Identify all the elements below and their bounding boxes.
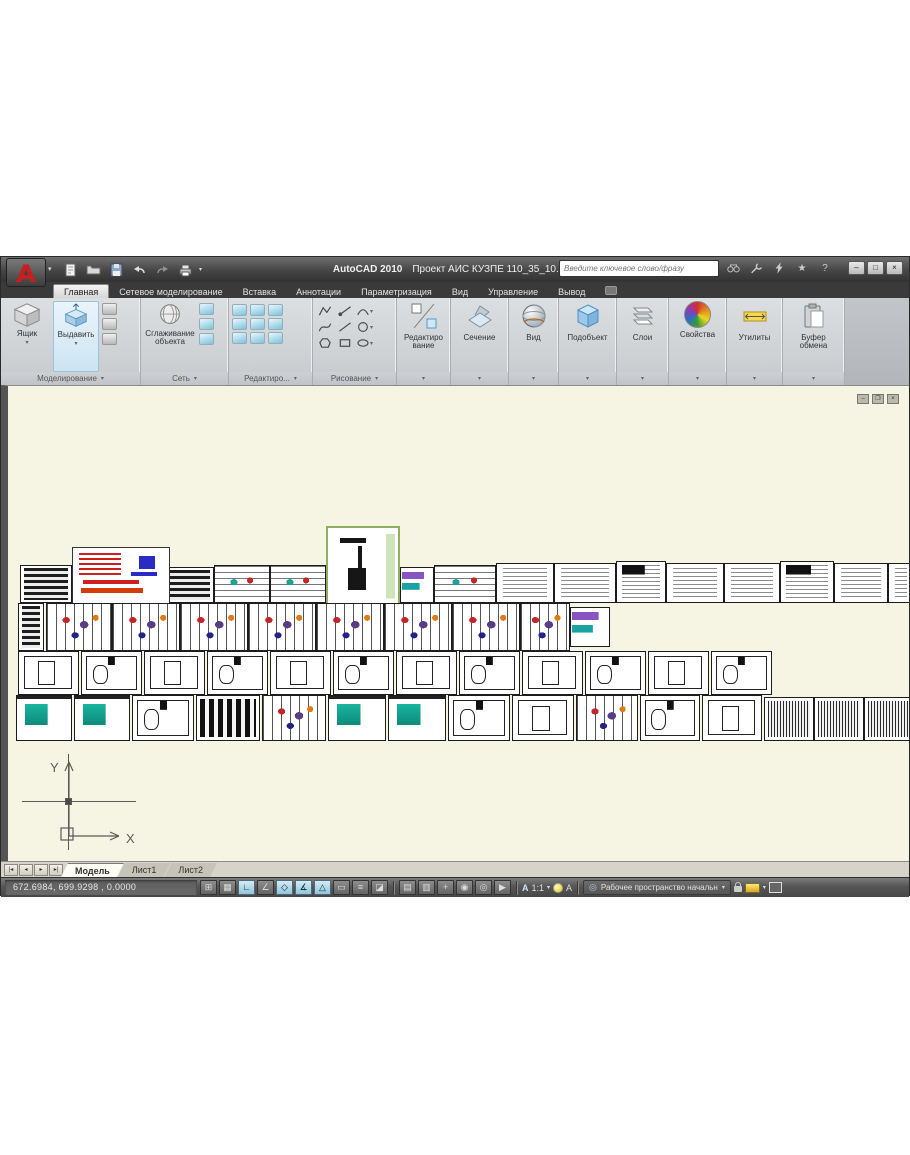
drawing-sheet: [248, 603, 316, 651]
clipboard-icon: [799, 301, 829, 331]
drawing-sheet: [18, 603, 44, 651]
crosshair-pickbox: [65, 798, 72, 805]
qat-dropdown-icon[interactable]: ▾: [199, 266, 202, 273]
app-title: AutoCAD 2010: [333, 264, 402, 275]
redo-icon[interactable]: [153, 262, 172, 278]
measure-icon: [740, 301, 770, 331]
status-bar: 672.6984, 699.9298 , 0.0000 ⊞▦∟∠◇∡△▭≡◪ ▤…: [1, 877, 909, 897]
statusbar-separator: [577, 881, 578, 895]
window-controls: – □ ×: [848, 261, 903, 275]
layout-nav-button-1[interactable]: ◂: [19, 864, 33, 876]
app-menu-arrow-icon[interactable]: ▾: [48, 265, 52, 273]
annotation-scale-value: 1:1: [532, 883, 545, 893]
extrude-button[interactable]: Выдавить▾: [53, 301, 99, 372]
workspace-label: Рабочее пространство начальн: [601, 883, 718, 892]
drawing-sheet: [20, 565, 72, 603]
panel-expander-subobject[interactable]: ▾: [559, 372, 616, 385]
line-icon[interactable]: [336, 320, 353, 334]
layout-nav-button-0[interactable]: |◂: [4, 864, 18, 876]
ucs-x-label: X: [126, 831, 135, 846]
dyn-toggle[interactable]: ▭: [333, 880, 350, 895]
drawing-minimize-button[interactable]: –: [857, 394, 869, 404]
drawing-sheet: [270, 651, 331, 695]
panel-expander-layers[interactable]: ▾: [617, 372, 668, 385]
drawing-sheet: [616, 561, 666, 603]
panel-expander-clipboard[interactable]: ▾: [783, 372, 844, 385]
panel-expander-properties[interactable]: ▾: [669, 372, 726, 385]
drawing-sheet: [724, 563, 780, 603]
union-icon[interactable]: [232, 304, 247, 316]
drawing-sheet: [72, 547, 170, 605]
box-icon: [11, 301, 43, 329]
circle-icon[interactable]: ▾: [356, 320, 373, 334]
subtract-icon[interactable]: [250, 304, 265, 316]
drawing-sheet: [81, 651, 142, 695]
drawing-sheet: [112, 603, 180, 651]
drawing-sheet: [333, 651, 394, 695]
help-icon[interactable]: ?: [817, 260, 833, 276]
drawing-window-controls: – ❐ ×: [857, 394, 899, 404]
loft-icon[interactable]: [102, 333, 117, 345]
drawing-sheet: [640, 695, 700, 741]
workspace-gear-icon: ◎: [589, 882, 597, 893]
ribbon: Ящик▾ Выдавить▾ Моделирование▾ Сглаживан…: [1, 298, 909, 385]
ribbon-tab-bar: ГлавнаяСетевое моделированиеВставкаАннот…: [1, 282, 909, 298]
drawing-sheet: [46, 603, 112, 651]
polar-toggle[interactable]: ∠: [257, 880, 274, 895]
steering-wheel-button[interactable]: ◎: [475, 880, 492, 895]
drawing-sheet: [74, 695, 130, 741]
extrude-icon: [60, 302, 92, 330]
drawing-sheet: [576, 695, 638, 741]
panel-expander-utilities[interactable]: ▾: [727, 372, 782, 385]
ribbon-panel-utilities[interactable]: Утилиты ▾: [727, 298, 783, 385]
workspace-switcher[interactable]: ◎ Рабочее пространство начальн ▾: [583, 880, 731, 895]
ribbon-tab[interactable]: Сетевое моделирование: [109, 285, 232, 298]
imprint-icon[interactable]: [250, 332, 265, 344]
drawing-sheet: [496, 563, 554, 603]
ribbon-panel-view[interactable]: Вид ▾: [509, 298, 559, 385]
undo-icon[interactable]: [130, 262, 149, 278]
ribbon-tab-list: ГлавнаяСетевое моделированиеВставкаАннот…: [53, 284, 595, 298]
ribbon-tab[interactable]: Вставка: [233, 285, 286, 298]
ribbon-filler: [845, 298, 909, 385]
drawing-sheet: [196, 695, 260, 741]
drawing-sheet: [702, 695, 762, 741]
quickview-layouts-button[interactable]: ▤: [399, 880, 416, 895]
ribbon-tab[interactable]: Вывод: [548, 285, 595, 298]
qp-toggle[interactable]: ◪: [371, 880, 388, 895]
tray-dropdown-icon[interactable]: ▾: [763, 884, 766, 891]
otrack-toggle[interactable]: ∡: [295, 880, 312, 895]
drawing-sheet: [388, 695, 446, 741]
mesh-add-crease-icon[interactable]: [199, 318, 214, 330]
spline-icon[interactable]: [316, 320, 333, 334]
drawing-sheet: [207, 651, 268, 695]
canvas[interactable]: – ❐ × Y X: [1, 385, 909, 861]
ribbon-panel-layers[interactable]: Слои ▾: [617, 298, 669, 385]
drawing-sheet: [780, 561, 834, 603]
drawing-sheet: [214, 565, 270, 603]
layout-tab[interactable]: Лист1: [118, 863, 171, 877]
ribbon-panel-clipboard[interactable]: Буфер обмена ▾: [783, 298, 845, 385]
drawing-sheet: [18, 651, 79, 695]
ribbon-panel-section[interactable]: Сечение ▾: [451, 298, 509, 385]
drawing-sheet: [270, 565, 326, 603]
panel-label-modeling[interactable]: Моделирование▾: [1, 372, 140, 385]
clean-screen-button[interactable]: [769, 882, 782, 893]
layout-tab-bar: |◂◂▸▸| МодельЛист1Лист2: [1, 861, 909, 877]
drawing-sheet: [834, 563, 888, 603]
drawing-sheet: [434, 565, 496, 603]
section-icon: [465, 301, 495, 331]
drawing-sheet: [326, 526, 400, 605]
draw-grid: ▾▾▾: [316, 301, 373, 372]
ortho-toggle[interactable]: ∟: [238, 880, 255, 895]
layout-tab[interactable]: Лист2: [164, 863, 217, 877]
drawing-sheet: [864, 697, 909, 741]
panel-label-solidedit[interactable]: Редактиро...▾: [229, 372, 312, 385]
drawing-sheet: [814, 697, 864, 741]
polygon-icon[interactable]: [316, 336, 333, 350]
separate-icon[interactable]: [268, 332, 283, 344]
extrude-face-icon[interactable]: [232, 318, 247, 330]
layout-tab-nav: |◂◂▸▸|: [4, 864, 63, 876]
drawing-sheet: [570, 607, 610, 647]
ribbon-tab[interactable]: Управление: [478, 285, 548, 298]
ribbon-tab[interactable]: Аннотации: [286, 285, 351, 298]
mesh-smooth-less-icon[interactable]: [199, 333, 214, 345]
drawing-sheet: [888, 563, 909, 603]
modify-icon: [409, 301, 439, 331]
drawing-sheet: [396, 651, 457, 695]
autocad-window: ▾ ▾ AutoCAD 2010Проект АИС КУЗПЕ 110_35_…: [0, 256, 910, 896]
autocad-logo-icon: [13, 262, 39, 284]
quickview-drawings-button[interactable]: ▥: [418, 880, 435, 895]
drawing-sheet: [384, 603, 452, 651]
favorites-star-icon[interactable]: ★: [794, 260, 810, 276]
search-icon[interactable]: [725, 260, 741, 276]
layout-nav-button-2[interactable]: ▸: [34, 864, 48, 876]
panel-label-mesh[interactable]: Сеть▾: [141, 372, 228, 385]
ribbon-tab[interactable]: Главная: [53, 284, 109, 298]
drawing-sheet: [520, 603, 570, 651]
sweep-icon[interactable]: [102, 318, 117, 330]
drawing-close-button[interactable]: ×: [887, 394, 899, 404]
ucs-icon: Y X: [14, 744, 139, 850]
ellipse-icon[interactable]: ▾: [356, 336, 373, 350]
snap-toggle[interactable]: ⊞: [200, 880, 217, 895]
modeling-small-icons: [102, 301, 117, 372]
box-button[interactable]: Ящик▾: [4, 301, 50, 372]
rectangle-icon[interactable]: [336, 336, 353, 350]
drawing-sheet: [452, 603, 520, 651]
drawing-sheet: [316, 603, 384, 651]
ribbon-panel-modify[interactable]: Редактиро вание ▾: [397, 298, 451, 385]
status-quick-icons: ▤▥+◉◎▶: [399, 880, 511, 895]
ray-icon[interactable]: [336, 304, 353, 318]
drawing-sheet: [522, 651, 583, 695]
crosshair-horizontal: [22, 801, 136, 802]
drawing-sheet: [132, 695, 194, 741]
open-icon[interactable]: [84, 262, 103, 278]
drawing-sheet: [711, 651, 772, 695]
drawing-sheet: [648, 651, 709, 695]
drawing-sheet: [512, 695, 574, 741]
polyline-icon[interactable]: [316, 304, 333, 318]
shell-icon[interactable]: [232, 332, 247, 344]
properties-colorwheel-icon: [684, 301, 711, 328]
panel-expander-modify[interactable]: ▾: [397, 372, 450, 385]
panel-expander-view[interactable]: ▾: [509, 372, 558, 385]
panel-label-draw[interactable]: Рисование▾: [313, 372, 396, 385]
mesh-small-icons: [199, 301, 214, 372]
ribbon-tab-extra-icon[interactable]: [605, 286, 617, 295]
grid-toggle[interactable]: ▦: [219, 880, 236, 895]
ribbon-tab[interactable]: Параметризация: [351, 285, 442, 298]
ribbon-tab[interactable]: Вид: [442, 285, 478, 298]
drawing-sheet: [666, 563, 724, 603]
annotation-icon: А: [522, 883, 529, 893]
quick-access-toolbar: [61, 262, 195, 278]
tray-icon[interactable]: [745, 883, 760, 893]
move-face-icon[interactable]: [250, 318, 265, 330]
ucs-y-label: Y: [50, 760, 59, 775]
pan-button[interactable]: +: [437, 880, 454, 895]
layout-tab-list: МодельЛист1Лист2: [67, 863, 217, 877]
ribbon-panel-properties[interactable]: Свойства ▾: [669, 298, 727, 385]
infocenter-icons: ★ ?: [725, 260, 833, 276]
intersect-icon[interactable]: [268, 304, 283, 316]
drawing-sheet: [764, 697, 814, 741]
annotation-visibility-icon[interactable]: [553, 883, 563, 893]
drawing-sheet: [144, 651, 205, 695]
drawing-sheet: [585, 651, 646, 695]
view-sphere-icon: [519, 301, 549, 331]
drawing-sheet: [262, 695, 326, 741]
show-motion-button[interactable]: ▶: [494, 880, 511, 895]
save-icon[interactable]: [107, 262, 126, 278]
drawing-sheet: [400, 567, 434, 603]
layers-icon: [628, 301, 658, 331]
polysolid-icon[interactable]: [102, 303, 117, 315]
status-toggles: ⊞▦∟∠◇∡△▭≡◪: [200, 880, 388, 895]
minimize-button[interactable]: –: [848, 261, 865, 275]
osnap-toggle[interactable]: ◇: [276, 880, 293, 895]
drawing-sheet: [328, 695, 386, 741]
drawing-sheet: [180, 603, 248, 651]
layout-nav-button-3[interactable]: ▸|: [49, 864, 63, 876]
coordinates-readout[interactable]: 672.6984, 699.9298 , 0.0000: [5, 880, 197, 895]
ribbon-panel-modeling: Ящик▾ Выдавить▾ Моделирование▾: [1, 298, 141, 385]
panel-expander-section[interactable]: ▾: [451, 372, 508, 385]
communication-center-icon[interactable]: [771, 260, 787, 276]
offset-face-icon[interactable]: [268, 318, 283, 330]
zoom-button[interactable]: ◉: [456, 880, 473, 895]
ducs-toggle[interactable]: △: [314, 880, 331, 895]
lwt-toggle[interactable]: ≡: [352, 880, 369, 895]
infocenter-search-input[interactable]: [559, 260, 719, 277]
mesh-refine-icon[interactable]: [199, 303, 214, 315]
statusbar-separator: [393, 881, 394, 895]
ribbon-panel-mesh: Сглаживание объекта Сеть▾: [141, 298, 229, 385]
statusbar-separator: [516, 881, 517, 895]
subobject-icon: [573, 301, 603, 331]
arc-icon[interactable]: ▾: [356, 304, 373, 318]
document-title: Проект АИС КУЗПЕ 110_35_10.dwg: [412, 264, 577, 275]
drawing-sheet: [448, 695, 510, 741]
ribbon-panel-solidedit: Редактиро...▾: [229, 298, 313, 385]
subscription-wrench-icon[interactable]: [748, 260, 764, 276]
annotation-autoscale-icon[interactable]: А: [566, 883, 572, 893]
lock-icon[interactable]: [734, 886, 742, 892]
new-icon[interactable]: [61, 262, 80, 278]
drawing-restore-button[interactable]: ❐: [872, 394, 884, 404]
drawing-sheet: [16, 695, 72, 741]
app-menu-button[interactable]: [6, 258, 46, 287]
ribbon-panel-subobject[interactable]: Подобъект ▾: [559, 298, 617, 385]
maximize-button[interactable]: □: [867, 261, 884, 275]
mesh-smooth-icon: [154, 301, 186, 329]
layout-tab[interactable]: Модель: [61, 863, 124, 877]
annotation-scale-button[interactable]: А 1:1 ▾: [522, 883, 550, 893]
plot-icon[interactable]: [176, 262, 195, 278]
smooth-object-button[interactable]: Сглаживание объекта: [144, 301, 196, 372]
drawing-sheet: [459, 651, 520, 695]
solidedit-grid: [232, 301, 283, 372]
close-button[interactable]: ×: [886, 261, 903, 275]
drawing-sheet: [554, 563, 616, 603]
ribbon-panel-draw: ▾▾▾ Рисование▾: [313, 298, 397, 385]
title-bar: ▾ ▾ AutoCAD 2010Проект АИС КУЗПЕ 110_35_…: [1, 257, 909, 282]
